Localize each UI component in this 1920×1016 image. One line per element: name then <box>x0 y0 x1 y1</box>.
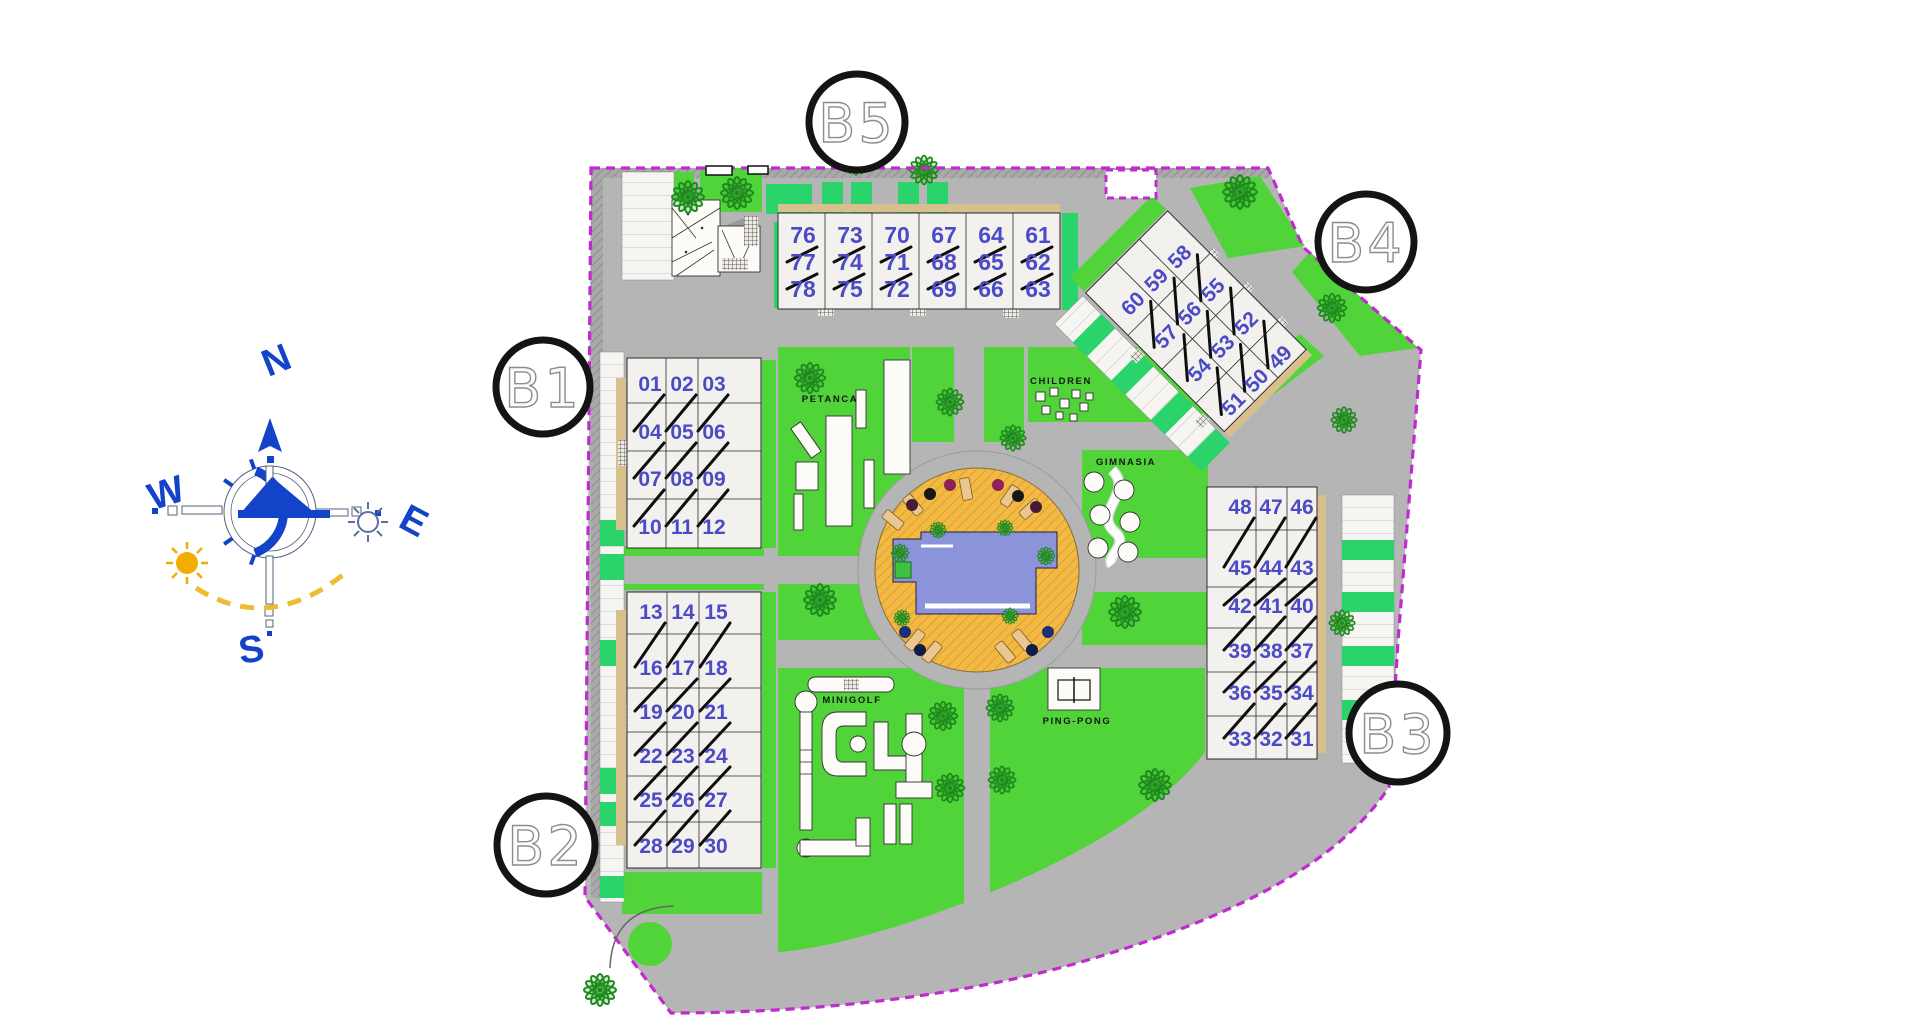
compass-east-label: E <box>393 497 435 546</box>
unit-18: 18 <box>704 657 728 680</box>
block-b5-label: B5 <box>818 92 895 155</box>
site-plan-canvas: 7673706764617774716865627875726966630102… <box>0 0 1920 1016</box>
unit-15: 15 <box>704 601 728 624</box>
unit-38: 38 <box>1259 640 1283 663</box>
minigolf-label: MINIGOLF <box>822 695 881 706</box>
unit-45: 45 <box>1228 557 1252 580</box>
block-marker-b3: B3 <box>1349 684 1447 782</box>
pool-area <box>858 451 1096 689</box>
pingpong-area <box>1048 668 1100 710</box>
unit-35: 35 <box>1259 682 1283 705</box>
unit-74: 74 <box>837 249 863 275</box>
northwest-parking <box>622 172 674 280</box>
unit-36: 36 <box>1228 682 1251 705</box>
unit-42: 42 <box>1228 595 1251 618</box>
unit-25: 25 <box>639 789 663 812</box>
compass-needle <box>240 477 316 514</box>
unit-31: 31 <box>1290 728 1314 751</box>
unit-28: 28 <box>639 835 663 858</box>
unit-06: 06 <box>702 421 725 444</box>
unit-19: 19 <box>639 701 662 724</box>
unit-71: 71 <box>884 249 910 275</box>
unit-40: 40 <box>1290 595 1313 618</box>
unit-63: 63 <box>1025 276 1051 302</box>
unit-22: 22 <box>639 745 662 768</box>
unit-13: 13 <box>639 601 662 624</box>
unit-34: 34 <box>1290 682 1314 705</box>
unit-73: 73 <box>837 222 863 248</box>
unit-37: 37 <box>1290 640 1313 663</box>
unit-78: 78 <box>790 276 816 302</box>
site-plan-page: 7673706764617774716865627875726966630102… <box>0 0 1920 1016</box>
unit-66: 66 <box>978 276 1004 302</box>
unit-05: 05 <box>670 421 694 444</box>
unit-17: 17 <box>671 657 694 680</box>
children-label: CHILDREN <box>1030 376 1092 387</box>
unit-69: 69 <box>931 276 957 302</box>
unit-04: 04 <box>638 421 662 444</box>
block-b1-label: B1 <box>504 357 581 420</box>
unit-10: 10 <box>638 516 661 539</box>
unit-43: 43 <box>1290 557 1313 580</box>
block-marker-b2: B2 <box>497 796 595 894</box>
unit-07: 07 <box>638 468 661 491</box>
north-arrow <box>258 418 282 452</box>
unit-24: 24 <box>704 745 728 768</box>
unit-47: 47 <box>1259 496 1282 519</box>
unit-20: 20 <box>671 701 694 724</box>
unit-02: 02 <box>670 373 693 396</box>
unit-23: 23 <box>671 745 694 768</box>
unit-67: 67 <box>931 222 957 248</box>
unit-01: 01 <box>638 373 662 396</box>
sunset-sun-icon <box>166 542 208 584</box>
unit-48: 48 <box>1228 496 1252 519</box>
unit-72: 72 <box>884 276 910 302</box>
unit-11: 11 <box>671 516 694 539</box>
unit-44: 44 <box>1259 557 1283 580</box>
unit-14: 14 <box>671 601 695 624</box>
unit-16: 16 <box>639 657 662 680</box>
pingpong-label: PING-PONG <box>1043 716 1112 727</box>
block-marker-b1: B1 <box>496 340 590 434</box>
unit-65: 65 <box>978 249 1004 275</box>
petanca-label: PETANCA <box>802 394 858 405</box>
unit-62: 62 <box>1025 249 1051 275</box>
block-b4-label: B4 <box>1327 212 1404 275</box>
unit-75: 75 <box>837 276 863 302</box>
unit-64: 64 <box>978 222 1004 248</box>
block-marker-b5: B5 <box>809 74 905 170</box>
unit-39: 39 <box>1228 640 1251 663</box>
unit-09: 09 <box>702 468 725 491</box>
unit-46: 46 <box>1290 496 1313 519</box>
tree-icon <box>584 974 616 1006</box>
building-B3: 484746454443424140393837363534333231 <box>1207 487 1317 759</box>
unit-41: 41 <box>1259 595 1283 618</box>
unit-61: 61 <box>1025 222 1051 248</box>
building-B5: 767370676461777471686562787572696663 <box>778 213 1060 309</box>
unit-03: 03 <box>702 373 725 396</box>
unit-12: 12 <box>702 516 725 539</box>
block-b3-label: B3 <box>1359 703 1436 766</box>
unit-29: 29 <box>671 835 694 858</box>
building-B2: 131415161718192021222324252627282930 <box>627 592 761 868</box>
unit-70: 70 <box>884 222 910 248</box>
sunrise-sun-icon <box>348 502 388 542</box>
entrance-gate <box>748 166 768 174</box>
gym-label: GIMNASIA <box>1096 457 1156 468</box>
unit-33: 33 <box>1228 728 1251 751</box>
building-B1: 010203040506070809101112 <box>627 358 761 548</box>
block-marker-b4: B4 <box>1318 194 1414 290</box>
unit-68: 68 <box>931 249 957 275</box>
utility-plot <box>1106 170 1156 198</box>
unit-30: 30 <box>704 835 727 858</box>
entrance-gate <box>706 166 732 175</box>
unit-21: 21 <box>704 701 728 724</box>
unit-08: 08 <box>670 468 694 491</box>
unit-77: 77 <box>790 249 816 275</box>
compass-north-label: N <box>256 336 297 385</box>
compass-rose: N W E S <box>143 336 435 672</box>
unit-26: 26 <box>671 789 694 812</box>
compass-south-label: S <box>236 628 267 673</box>
unit-32: 32 <box>1259 728 1282 751</box>
unit-76: 76 <box>790 222 816 248</box>
unit-27: 27 <box>704 789 727 812</box>
swimming-pool <box>893 532 1057 614</box>
block-b2-label: B2 <box>507 815 584 878</box>
